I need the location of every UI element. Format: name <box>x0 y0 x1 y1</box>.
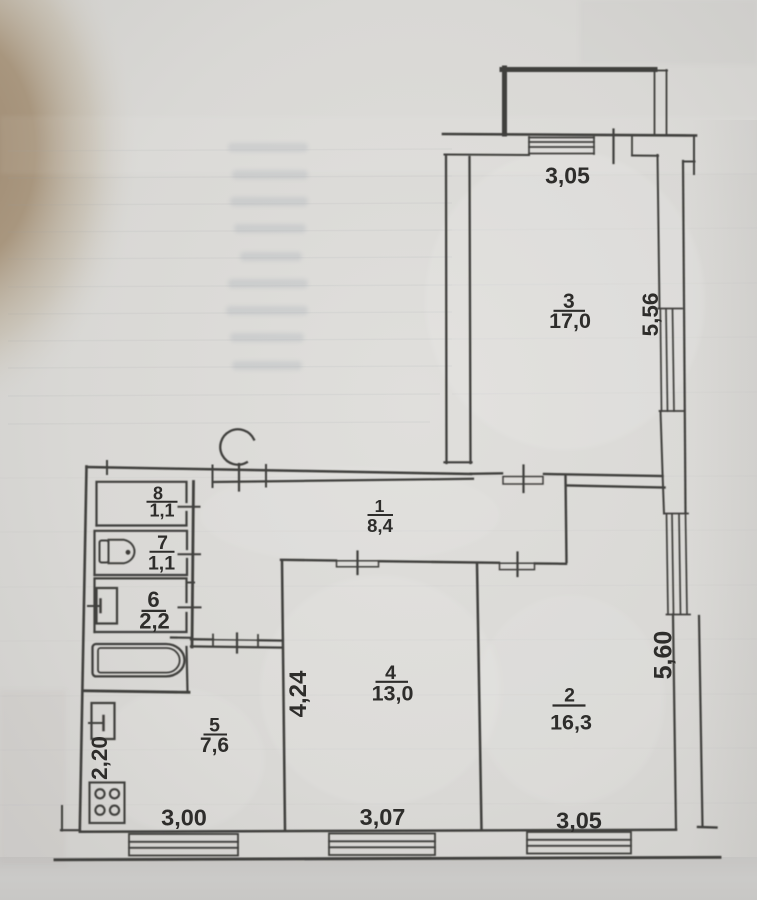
svg-text:8,4: 8,4 <box>367 515 393 536</box>
svg-text:1: 1 <box>375 496 385 516</box>
svg-text:1,1: 1,1 <box>148 553 175 575</box>
svg-text:3,05: 3,05 <box>545 163 590 189</box>
svg-text:7: 7 <box>157 532 168 554</box>
svg-text:17,0: 17,0 <box>549 309 591 333</box>
svg-text:5,56: 5,56 <box>638 293 663 337</box>
svg-text:1,1: 1,1 <box>149 501 174 521</box>
svg-text:3,05: 3,05 <box>556 808 602 834</box>
svg-text:3,07: 3,07 <box>360 804 406 830</box>
svg-text:2,20: 2,20 <box>87 736 112 780</box>
svg-text:13,0: 13,0 <box>372 682 414 706</box>
svg-text:7,6: 7,6 <box>200 734 229 757</box>
svg-text:3,00: 3,00 <box>161 805 207 831</box>
svg-text:16,3: 16,3 <box>550 711 592 735</box>
svg-text:2,2: 2,2 <box>139 608 170 633</box>
svg-text:2: 2 <box>564 685 575 707</box>
svg-text:5,60: 5,60 <box>650 631 678 680</box>
svg-text:4,24: 4,24 <box>285 670 312 717</box>
